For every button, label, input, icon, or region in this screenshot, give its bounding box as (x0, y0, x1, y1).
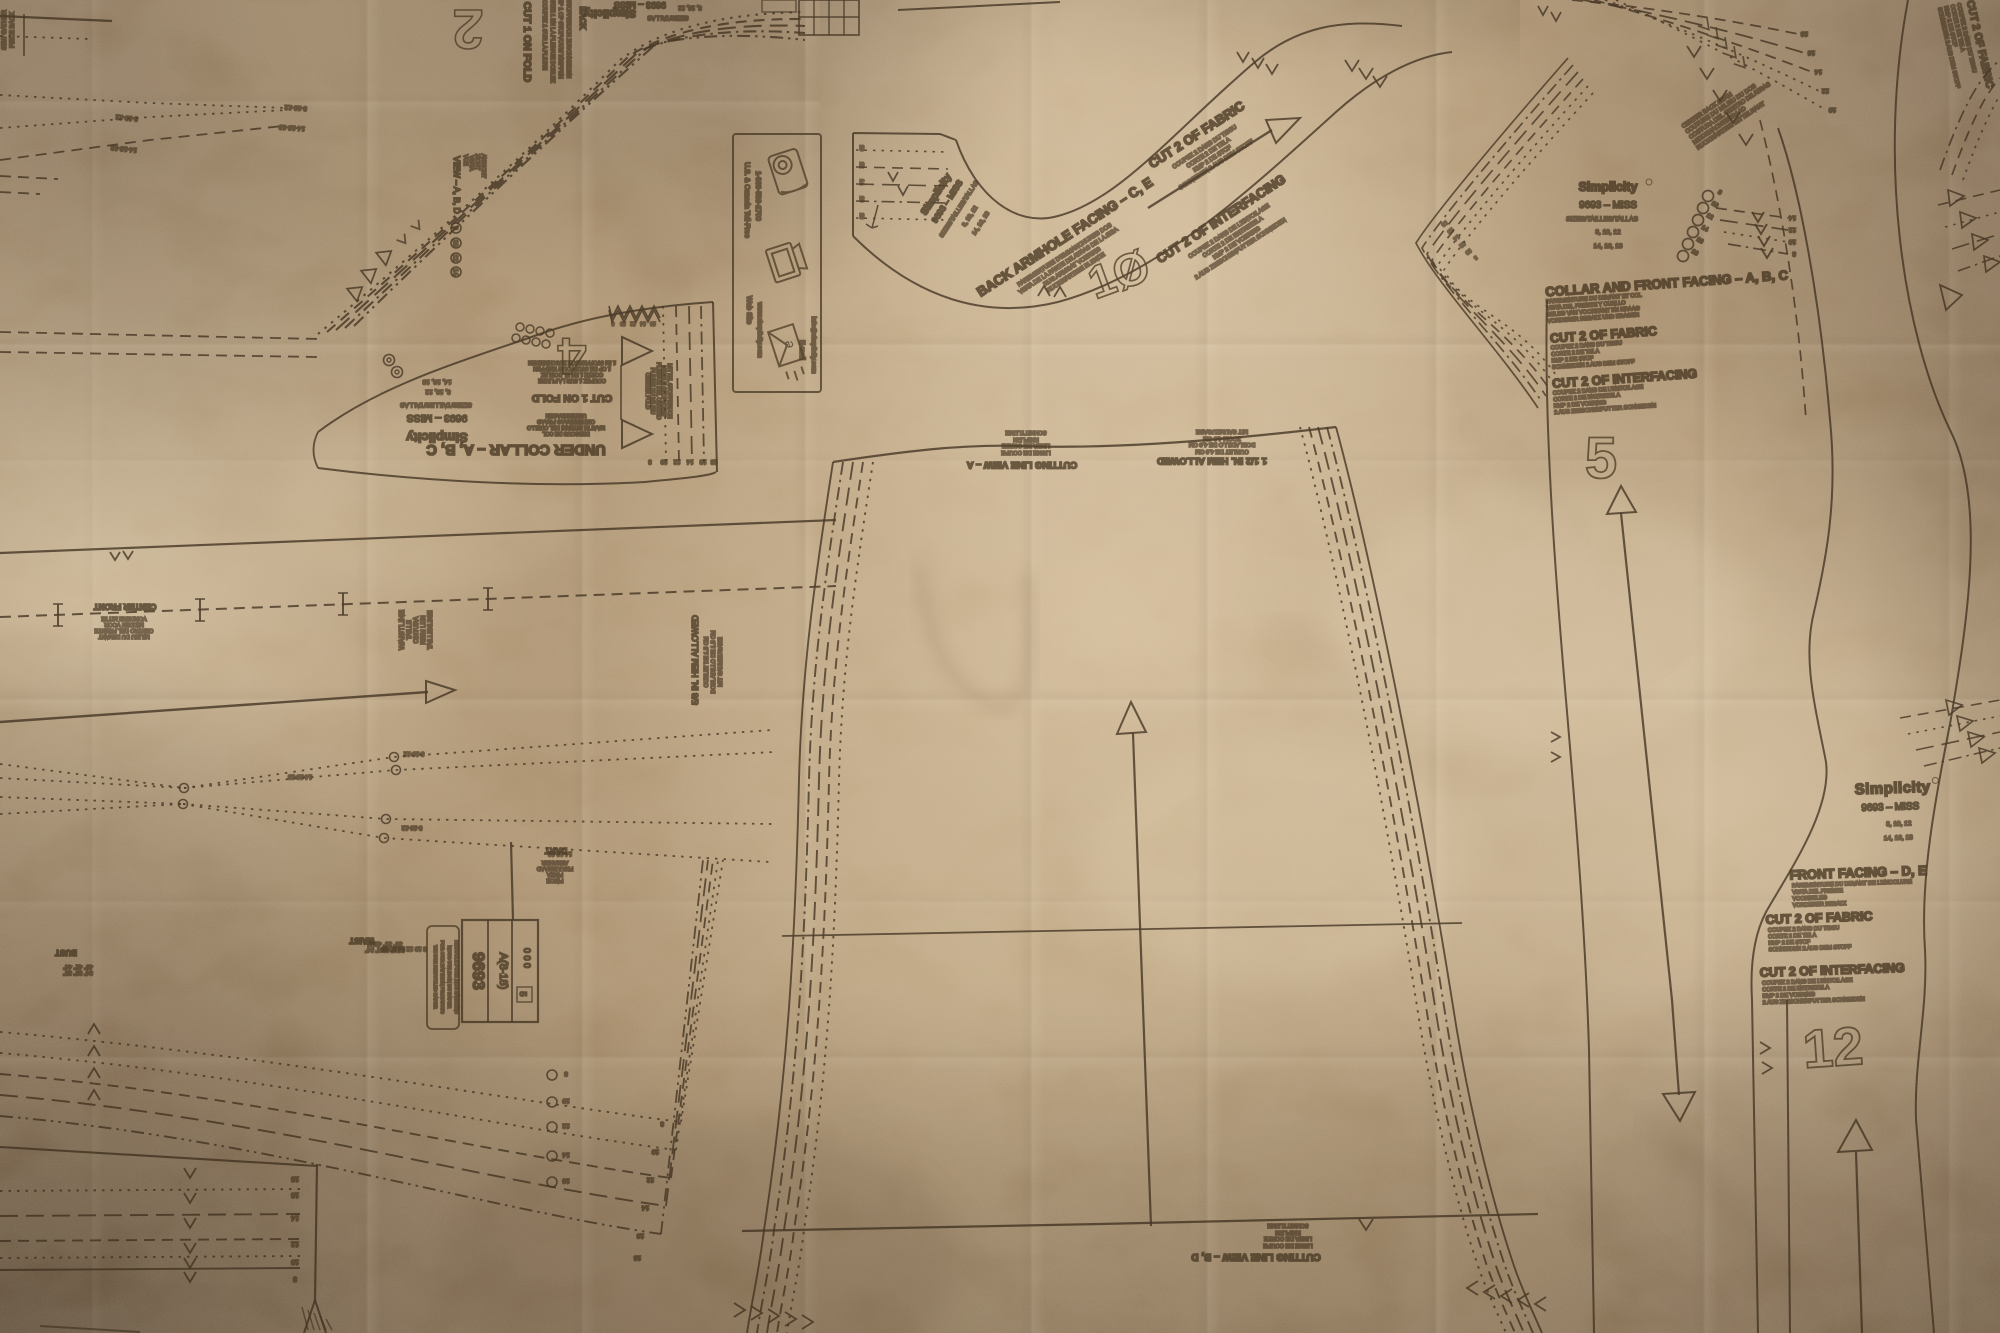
svg-text:10: 10 (562, 1097, 570, 1104)
svg-text:14, 16, 18: 14, 16, 18 (1594, 243, 1623, 250)
svg-text:TAILLENLINIE: TAILLENLINIE (428, 611, 434, 650)
svg-text:16: 16 (562, 1177, 570, 1184)
svg-text:12: 12 (858, 162, 864, 168)
svg-text:8: 8 (293, 1275, 297, 1282)
svg-text:10: 10 (291, 1258, 299, 1265)
svg-text:18: 18 (710, 458, 717, 464)
svg-text:14, 16, 18: 14, 16, 18 (422, 378, 451, 385)
svg-text:SEW GATHER: SEW GATHER (2, 9, 8, 50)
svg-text:ZOOM 4.0 CM: ZOOM 4.0 CM (1203, 435, 1241, 441)
svg-text:VISTA: VISTA (468, 155, 474, 171)
svg-text:14: 14 (562, 1151, 570, 1158)
svg-text:10: 10 (1788, 238, 1796, 245)
svg-text:9693 – MISS: 9693 – MISS (407, 412, 468, 424)
svg-text:14, 16, 18: 14, 16, 18 (1884, 834, 1914, 842)
svg-text:12: 12 (646, 1176, 654, 1183)
svg-text:MIT SAUMZUGABE: MIT SAUMZUGABE (718, 637, 724, 687)
svg-text:8, 10, 12: 8, 10, 12 (678, 4, 702, 10)
svg-text:16: 16 (291, 1191, 299, 1198)
svg-text:0 0 0: 0 0 0 (522, 948, 532, 968)
svg-text:DART: DART (545, 846, 567, 855)
svg-text:16: 16 (858, 196, 864, 202)
svg-text:UNDER COLLAR – A, B, C: UNDER COLLAR – A, B, C (426, 441, 606, 457)
svg-text:PIECE BACK: PIECE BACK (10, 12, 16, 48)
svg-text:14-16-18: 14-16-18 (287, 773, 312, 779)
svg-text:VORDERE MITTE: VORDERE MITTE (101, 615, 147, 621)
svg-text:9693 – MISS: 9693 – MISS (1861, 801, 1919, 814)
svg-text:CUTTING LINE VIEW – B, D: CUTTING LINE VIEW – B, D (1191, 1251, 1320, 1262)
svg-text:12: 12 (562, 1122, 570, 1129)
svg-text:MITTEL STOFFBRUCH: MITTEL STOFFBRUCH (666, 363, 672, 418)
svg-text:16: 16 (636, 1232, 644, 1239)
svg-text:Simplicity: Simplicity (583, 7, 636, 19)
svg-text:14: 14 (291, 1214, 299, 1221)
svg-text:14: 14 (452, 269, 458, 276)
svg-text:12: 12 (1788, 226, 1796, 233)
svg-text:BUST: BUST (55, 948, 77, 957)
svg-text:14: 14 (641, 1204, 649, 1211)
svg-text:14: 14 (1814, 68, 1822, 75)
svg-text:A(8-18): A(8-18) (497, 953, 509, 990)
svg-text:12: 12 (291, 1240, 299, 1247)
svg-text:8: 8 (611, 320, 614, 326)
svg-text:8: 8 (564, 1070, 568, 1077)
svg-text:OURLET DE 1.5 CM: OURLET DE 1.5 CM (704, 636, 710, 687)
svg-text:KNIP 1 OP STOFVOUW KNIPPEN: KNIP 1 OP STOFVOUW KNIPPEN (557, 0, 563, 79)
svg-text:VIEW – A, B, D: VIEW – A, B, D (452, 156, 462, 214)
svg-text:18: 18 (291, 1175, 299, 1182)
svg-text:RECYCLE POUR NOS PATRONS: RECYCLE POUR NOS PATRONS (453, 940, 459, 1013)
svg-text:16: 16 (650, 320, 656, 326)
svg-text:LIGNE DE COUPE: LIGNE DE COUPE (1263, 1242, 1312, 1248)
svg-text:CUTTING LINE VIEW – A: CUTTING LINE VIEW – A (967, 459, 1078, 470)
svg-text:8, 10, 12: 8, 10, 12 (425, 388, 451, 395)
svg-text:RIEM LIJN: RIEM LIJN (421, 615, 427, 644)
svg-text:40" 42" 44": 40" 42" 44" (63, 963, 93, 969)
svg-text:Web Site: Web Site (745, 296, 752, 324)
svg-text:5: 5 (1585, 426, 1617, 491)
svg-text:ANSICHT: ANSICHT (480, 154, 486, 179)
svg-text:LIGNE DE COUPE: LIGNE DE COUPE (1001, 449, 1050, 455)
svg-text:2: 2 (452, 0, 483, 61)
svg-text:MIT SAUMZUGABE: MIT SAUMZUGABE (1196, 428, 1248, 434)
svg-text:DOBLADILLO DE 1.5 CM: DOBLADILLO DE 1.5 CM (711, 630, 717, 693)
svg-text:IM STOFFBRUCH ZUSCHNEIDEN: IM STOFFBRUCH ZUSCHNEIDEN (565, 0, 571, 78)
svg-text:KNIPLIJN: KNIPLIJN (1013, 436, 1038, 442)
svg-text:8-10-12: 8-10-12 (403, 750, 424, 756)
svg-text:MIDDLE STOFVOUW: MIDDLE STOFVOUW (660, 366, 666, 417)
svg-text:CUT 1 ON FOLD: CUT 1 ON FOLD (521, 2, 533, 83)
svg-text:8: 8 (1792, 250, 1796, 257)
svg-text:5/8 IN. HEM ALLOWED: 5/8 IN. HEM ALLOWED (690, 615, 700, 705)
svg-text:WAISTLINE: WAISTLINE (397, 610, 406, 650)
svg-text:10: 10 (660, 458, 667, 464)
svg-text:OURLET DE 4.0 CM: OURLET DE 4.0 CM (1195, 448, 1249, 454)
svg-text:1-888-588-2700: 1-888-588-2700 (754, 171, 761, 221)
svg-text:FOR OUR PATTERN PRODUCTS: FOR OUR PATTERN PRODUCTS (439, 940, 445, 1013)
svg-text:CUT 1 ON FOLD: CUT 1 ON FOLD (531, 392, 612, 404)
svg-text:10: 10 (858, 145, 864, 151)
svg-text:CINTURA: CINTURA (414, 617, 420, 644)
svg-text:www.simplicity.com: www.simplicity.com (756, 301, 763, 358)
svg-text:8, 10, 12: 8, 10, 12 (1886, 820, 1912, 828)
svg-text:CENTER FRONT: CENTER FRONT (94, 602, 157, 611)
svg-text:18: 18 (1800, 30, 1808, 37)
svg-text:9693 – MISS: 9693 – MISS (1579, 200, 1637, 211)
svg-text:12: 12 (452, 255, 458, 262)
svg-text:SIZES/TAILLES/TALLAS: SIZES/TAILLES/TALLAS (400, 401, 472, 408)
svg-text:12: 12 (630, 320, 636, 326)
svg-text:14: 14 (686, 458, 693, 464)
svg-text:12: 12 (673, 458, 680, 464)
svg-text:8, 10, 12: 8, 10, 12 (1595, 229, 1621, 236)
svg-text:Simplicity: Simplicity (1854, 779, 1931, 799)
svg-text:5: 5 (518, 991, 528, 996)
svg-text:CORTE 1 EN LA PLIEGUE DOBLEZ: CORTE 1 EN LA PLIEGUE DOBLEZ (549, 0, 555, 84)
svg-text:UNTERKRAGEN: UNTERKRAGEN (546, 412, 587, 418)
svg-text:10: 10 (620, 320, 626, 326)
svg-text:10: 10 (452, 240, 458, 247)
svg-text:SIZES/TALLAS: SIZES/TALLAS (648, 14, 689, 20)
svg-text:COUPEZ 1 SUR LA PLIURE: COUPEZ 1 SUR LA PLIURE (541, 0, 547, 70)
svg-text:VUE: VUE (462, 154, 468, 166)
svg-text:10: 10 (651, 1148, 659, 1155)
svg-text:info@simplicity.com: info@simplicity.com (810, 316, 817, 373)
svg-text:PLIURE DU MILIEU: PLIURE DU MILIEU (649, 368, 655, 415)
svg-text:1 1/2 IN. HEM ALLOWED: 1 1/2 IN. HEM ALLOWED (1157, 455, 1267, 466)
svg-text:ABNAHER: ABNAHER (542, 859, 569, 865)
svg-text:U.S. & Canada Toll-Free: U.S. & Canada Toll-Free (743, 162, 750, 238)
svg-text:TAILLE: TAILLE (407, 620, 413, 640)
svg-text:14: 14 (640, 320, 646, 326)
svg-text:SCHNITTLIJNE: SCHNITTLIJNE (1267, 1222, 1308, 1228)
svg-text:SCHNITTLIJNE: SCHNITTLIJNE (1005, 429, 1046, 435)
svg-text:SIZES/TAILLES/TALLAS: SIZES/TAILLES/TALLAS (1566, 216, 1638, 223)
svg-text:14: 14 (1788, 214, 1796, 221)
svg-text:16: 16 (699, 458, 706, 464)
svg-text:9693: 9693 (469, 952, 488, 990)
svg-text:KNIPLIJN: KNIPLIJN (1275, 1229, 1300, 1235)
svg-text:14: 14 (858, 179, 864, 185)
svg-text:12: 12 (1801, 1016, 1865, 1080)
svg-text:18: 18 (633, 1254, 641, 1261)
svg-text:8-10-12: 8-10-12 (401, 824, 422, 830)
svg-text:12: 12 (1821, 87, 1829, 94)
svg-text:NOUS UTILISON DU PAPER: NOUS UTILISON DU PAPER (446, 946, 452, 1009)
svg-text:10: 10 (1828, 106, 1836, 113)
svg-text:WE USE RECYCLED PAPER: WE USE RECYCLED PAPER (432, 945, 438, 1009)
svg-text:18: 18 (858, 213, 864, 219)
svg-text:8: 8 (660, 1120, 664, 1127)
svg-text:16: 16 (1807, 49, 1815, 56)
svg-text:8 10 12 14 16 18: 8 10 12 14 16 18 (381, 945, 427, 951)
svg-text:ZICHT: ZICHT (474, 154, 480, 171)
svg-text:4: 4 (557, 326, 586, 384)
svg-text:Simplicity: Simplicity (1578, 180, 1637, 194)
